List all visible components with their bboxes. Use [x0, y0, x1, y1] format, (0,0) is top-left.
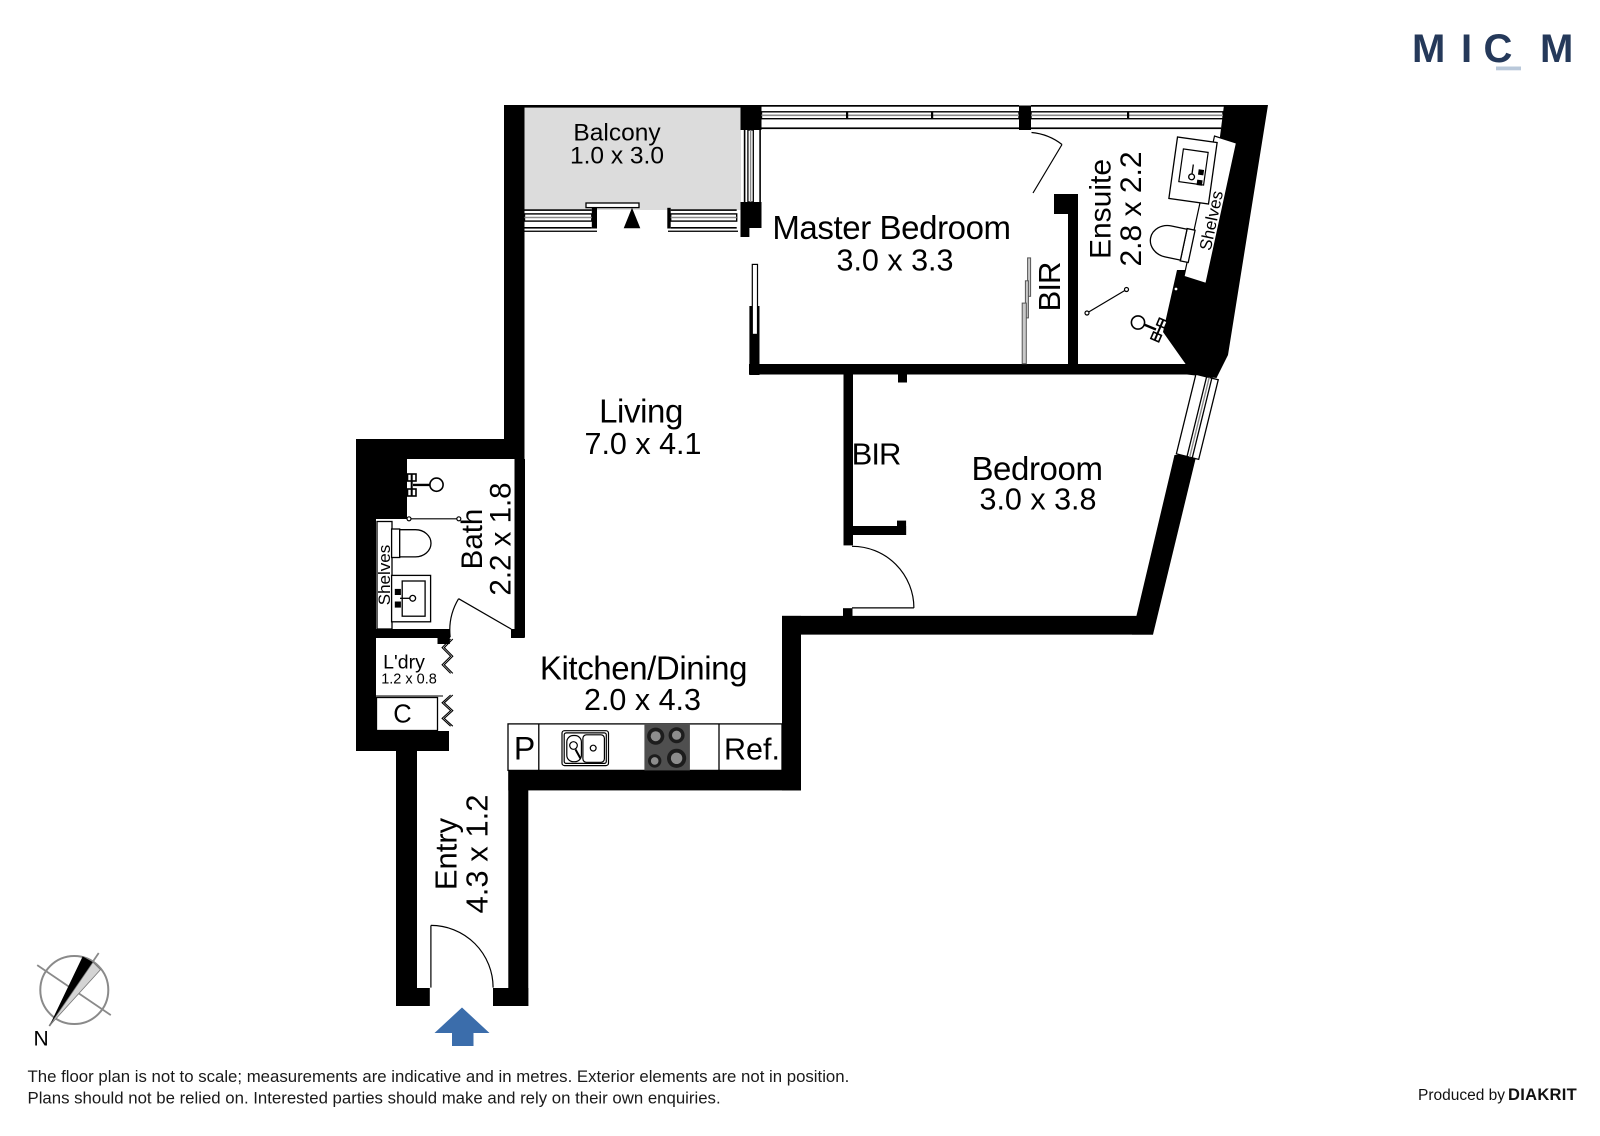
svg-text:Ensuite: Ensuite — [1085, 159, 1118, 259]
svg-text:Bedroom: Bedroom — [971, 450, 1102, 487]
svg-text:Plans should not be relied on.: Plans should not be relied on. Intereste… — [28, 1089, 721, 1108]
svg-text:1.0 x 3.0: 1.0 x 3.0 — [570, 143, 664, 170]
svg-text:Living: Living — [599, 393, 683, 430]
svg-text:2.0 x 4.3: 2.0 x 4.3 — [584, 683, 701, 717]
svg-text:7.0 x 4.1: 7.0 x 4.1 — [585, 427, 702, 461]
svg-text:Ref.: Ref. — [724, 733, 780, 767]
svg-text:L'dry: L'dry — [383, 652, 425, 674]
svg-text:2.8 x 2.2: 2.8 x 2.2 — [1115, 151, 1148, 266]
svg-text:I: I — [1461, 27, 1472, 71]
svg-text:The floor plan is not to scale: The floor plan is not to scale; measurem… — [28, 1067, 850, 1086]
svg-text:Entry: Entry — [429, 817, 464, 890]
svg-text:1.2 x 0.8: 1.2 x 0.8 — [381, 672, 437, 688]
svg-text:M: M — [1540, 27, 1573, 71]
svg-text:C: C — [1484, 27, 1513, 71]
svg-text:Shelves: Shelves — [375, 545, 394, 605]
svg-text:C: C — [393, 701, 411, 729]
svg-text:3.0 x 3.8: 3.0 x 3.8 — [980, 483, 1097, 517]
svg-text:Kitchen/Dining: Kitchen/Dining — [540, 650, 747, 687]
svg-text:4.3 x 1.2: 4.3 x 1.2 — [460, 795, 495, 914]
svg-text:DIAKRIT: DIAKRIT — [1508, 1086, 1577, 1104]
svg-text:BIR: BIR — [1032, 263, 1067, 312]
svg-text:2.2 x 1.8: 2.2 x 1.8 — [485, 482, 518, 595]
svg-text:3.0 x 3.3: 3.0 x 3.3 — [837, 244, 954, 278]
svg-text:M: M — [1412, 27, 1445, 71]
svg-text:P: P — [514, 731, 535, 767]
svg-text:Master Bedroom: Master Bedroom — [772, 209, 1010, 246]
svg-text:BIR: BIR — [852, 437, 901, 472]
svg-text:N: N — [34, 1028, 49, 1051]
svg-text:Produced by: Produced by — [1418, 1087, 1505, 1104]
